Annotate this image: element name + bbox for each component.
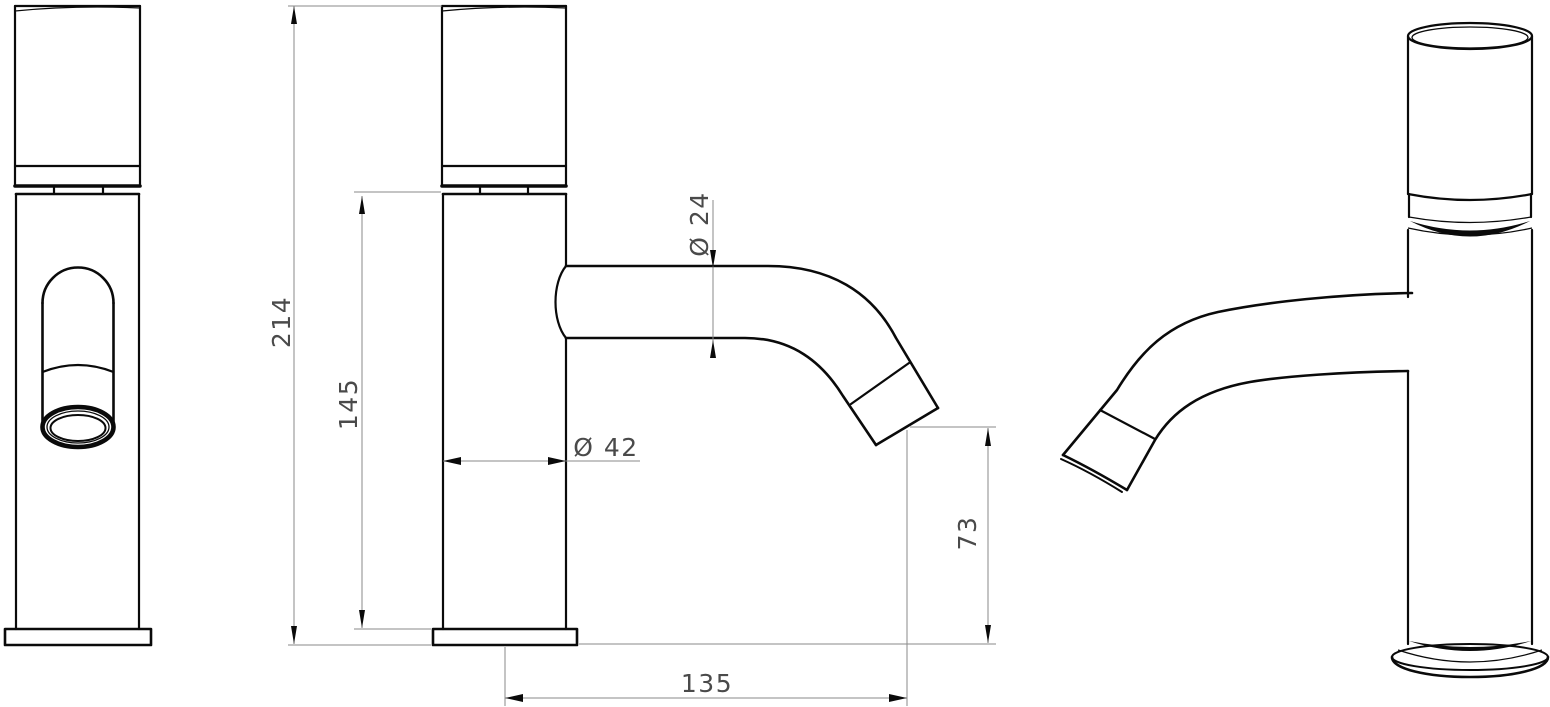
dimension-label-diameter-42: Ø 42: [573, 433, 638, 462]
dimension-label-73: 73: [953, 516, 982, 551]
arrowhead: [985, 625, 991, 643]
perspective-body: [1408, 230, 1532, 644]
dimension-label-diameter-24: Ø 24: [685, 191, 714, 256]
dimension-spout-diameter: Ø 24: [685, 191, 716, 358]
dimension-outlet-height: 73: [579, 427, 996, 644]
arrowhead: [443, 457, 461, 465]
front-spout-outlet: [43, 268, 114, 448]
side-body: [443, 194, 566, 629]
dimension-total-height: 214: [267, 6, 442, 645]
side-view: [433, 6, 938, 645]
perspective-handle: [1408, 23, 1532, 223]
arrowhead: [548, 457, 566, 465]
side-handle: [442, 6, 566, 186]
perspective-base-plate: [1392, 641, 1548, 677]
perspective-junction-ring: [1408, 221, 1532, 237]
front-base-plate: [5, 629, 151, 645]
front-view: [5, 6, 151, 645]
dimension-label-145: 145: [334, 378, 363, 430]
arrowhead: [710, 340, 716, 358]
arrowhead: [505, 694, 523, 702]
arrowhead: [291, 626, 297, 644]
front-handle: [15, 6, 140, 186]
perspective-spout: [1061, 293, 1412, 492]
side-spout: [566, 266, 938, 445]
arrowhead: [359, 196, 365, 214]
arrowhead: [291, 6, 297, 24]
dimension-label-214: 214: [267, 296, 296, 348]
dimension-body-height: 145: [334, 192, 441, 629]
technical-drawing-canvas: 214 145 Ø 42 Ø 24 73 135: [0, 0, 1550, 707]
arrowhead: [889, 694, 907, 702]
arrowhead: [985, 428, 991, 446]
dimension-label-135: 135: [681, 669, 733, 698]
faucet-drawing-svg: 214 145 Ø 42 Ø 24 73 135: [0, 0, 1550, 707]
arrowhead: [359, 610, 365, 628]
dimension-body-diameter: Ø 42: [443, 433, 640, 465]
perspective-view: [1061, 23, 1548, 677]
side-base-plate: [433, 629, 577, 645]
